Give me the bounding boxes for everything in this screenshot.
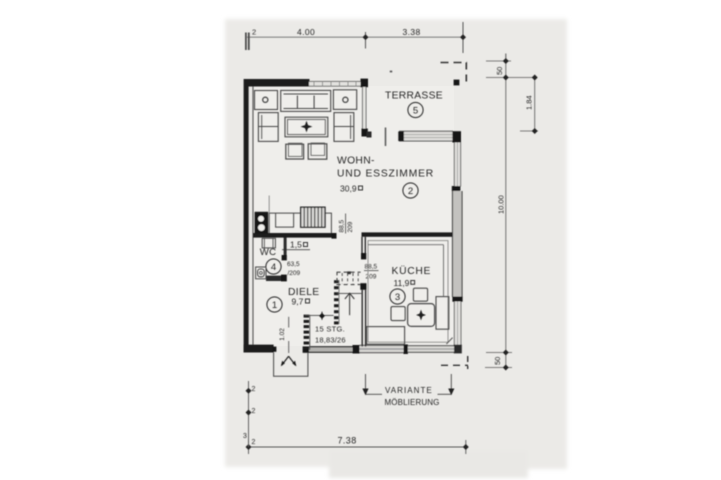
svg-text:63,5: 63,5: [287, 261, 300, 268]
svg-text:10.00: 10.00: [497, 195, 506, 214]
svg-text:2: 2: [408, 186, 413, 197]
svg-text:2: 2: [252, 386, 256, 393]
svg-text:30,9: 30,9: [340, 184, 357, 194]
svg-text:3: 3: [243, 433, 247, 440]
svg-text:50: 50: [495, 67, 504, 75]
svg-text:/209: /209: [288, 270, 301, 277]
svg-text:1,5: 1,5: [290, 240, 302, 250]
svg-text:88,5: 88,5: [365, 264, 378, 271]
svg-text:1.84: 1.84: [525, 95, 534, 110]
svg-text:WOHN-: WOHN-: [337, 156, 375, 167]
svg-text:VARIANTE: VARIANTE: [385, 386, 433, 395]
svg-text:15 STG.: 15 STG.: [315, 325, 345, 334]
svg-text:88,5: 88,5: [338, 219, 345, 232]
svg-text:9,7: 9,7: [292, 297, 304, 307]
svg-text:18,83/26: 18,83/26: [315, 336, 346, 345]
svg-text:KÜCHE: KÜCHE: [392, 265, 432, 277]
svg-text:2: 2: [252, 28, 256, 37]
svg-text:209: 209: [366, 274, 377, 281]
svg-text:3: 3: [395, 292, 400, 303]
svg-text:UND ESSZIMMER: UND ESSZIMMER: [337, 169, 434, 180]
svg-text:TERRASSE: TERRASSE: [385, 90, 443, 101]
svg-text:2: 2: [252, 408, 256, 415]
svg-text:4.00: 4.00: [297, 27, 315, 37]
svg-text:WC: WC: [260, 247, 277, 258]
svg-text:4: 4: [271, 262, 277, 273]
svg-text:3.38: 3.38: [403, 27, 421, 37]
svg-text:2: 2: [252, 439, 256, 446]
svg-text:1.02: 1.02: [279, 328, 286, 341]
svg-text:50: 50: [493, 357, 502, 365]
svg-text:MÖBLIERUNG: MÖBLIERUNG: [385, 398, 440, 407]
svg-text:7.38: 7.38: [338, 435, 357, 445]
svg-text:11,9: 11,9: [394, 278, 410, 288]
svg-text:1: 1: [272, 300, 277, 311]
svg-text:5: 5: [413, 106, 418, 117]
svg-text:209: 209: [347, 221, 354, 232]
